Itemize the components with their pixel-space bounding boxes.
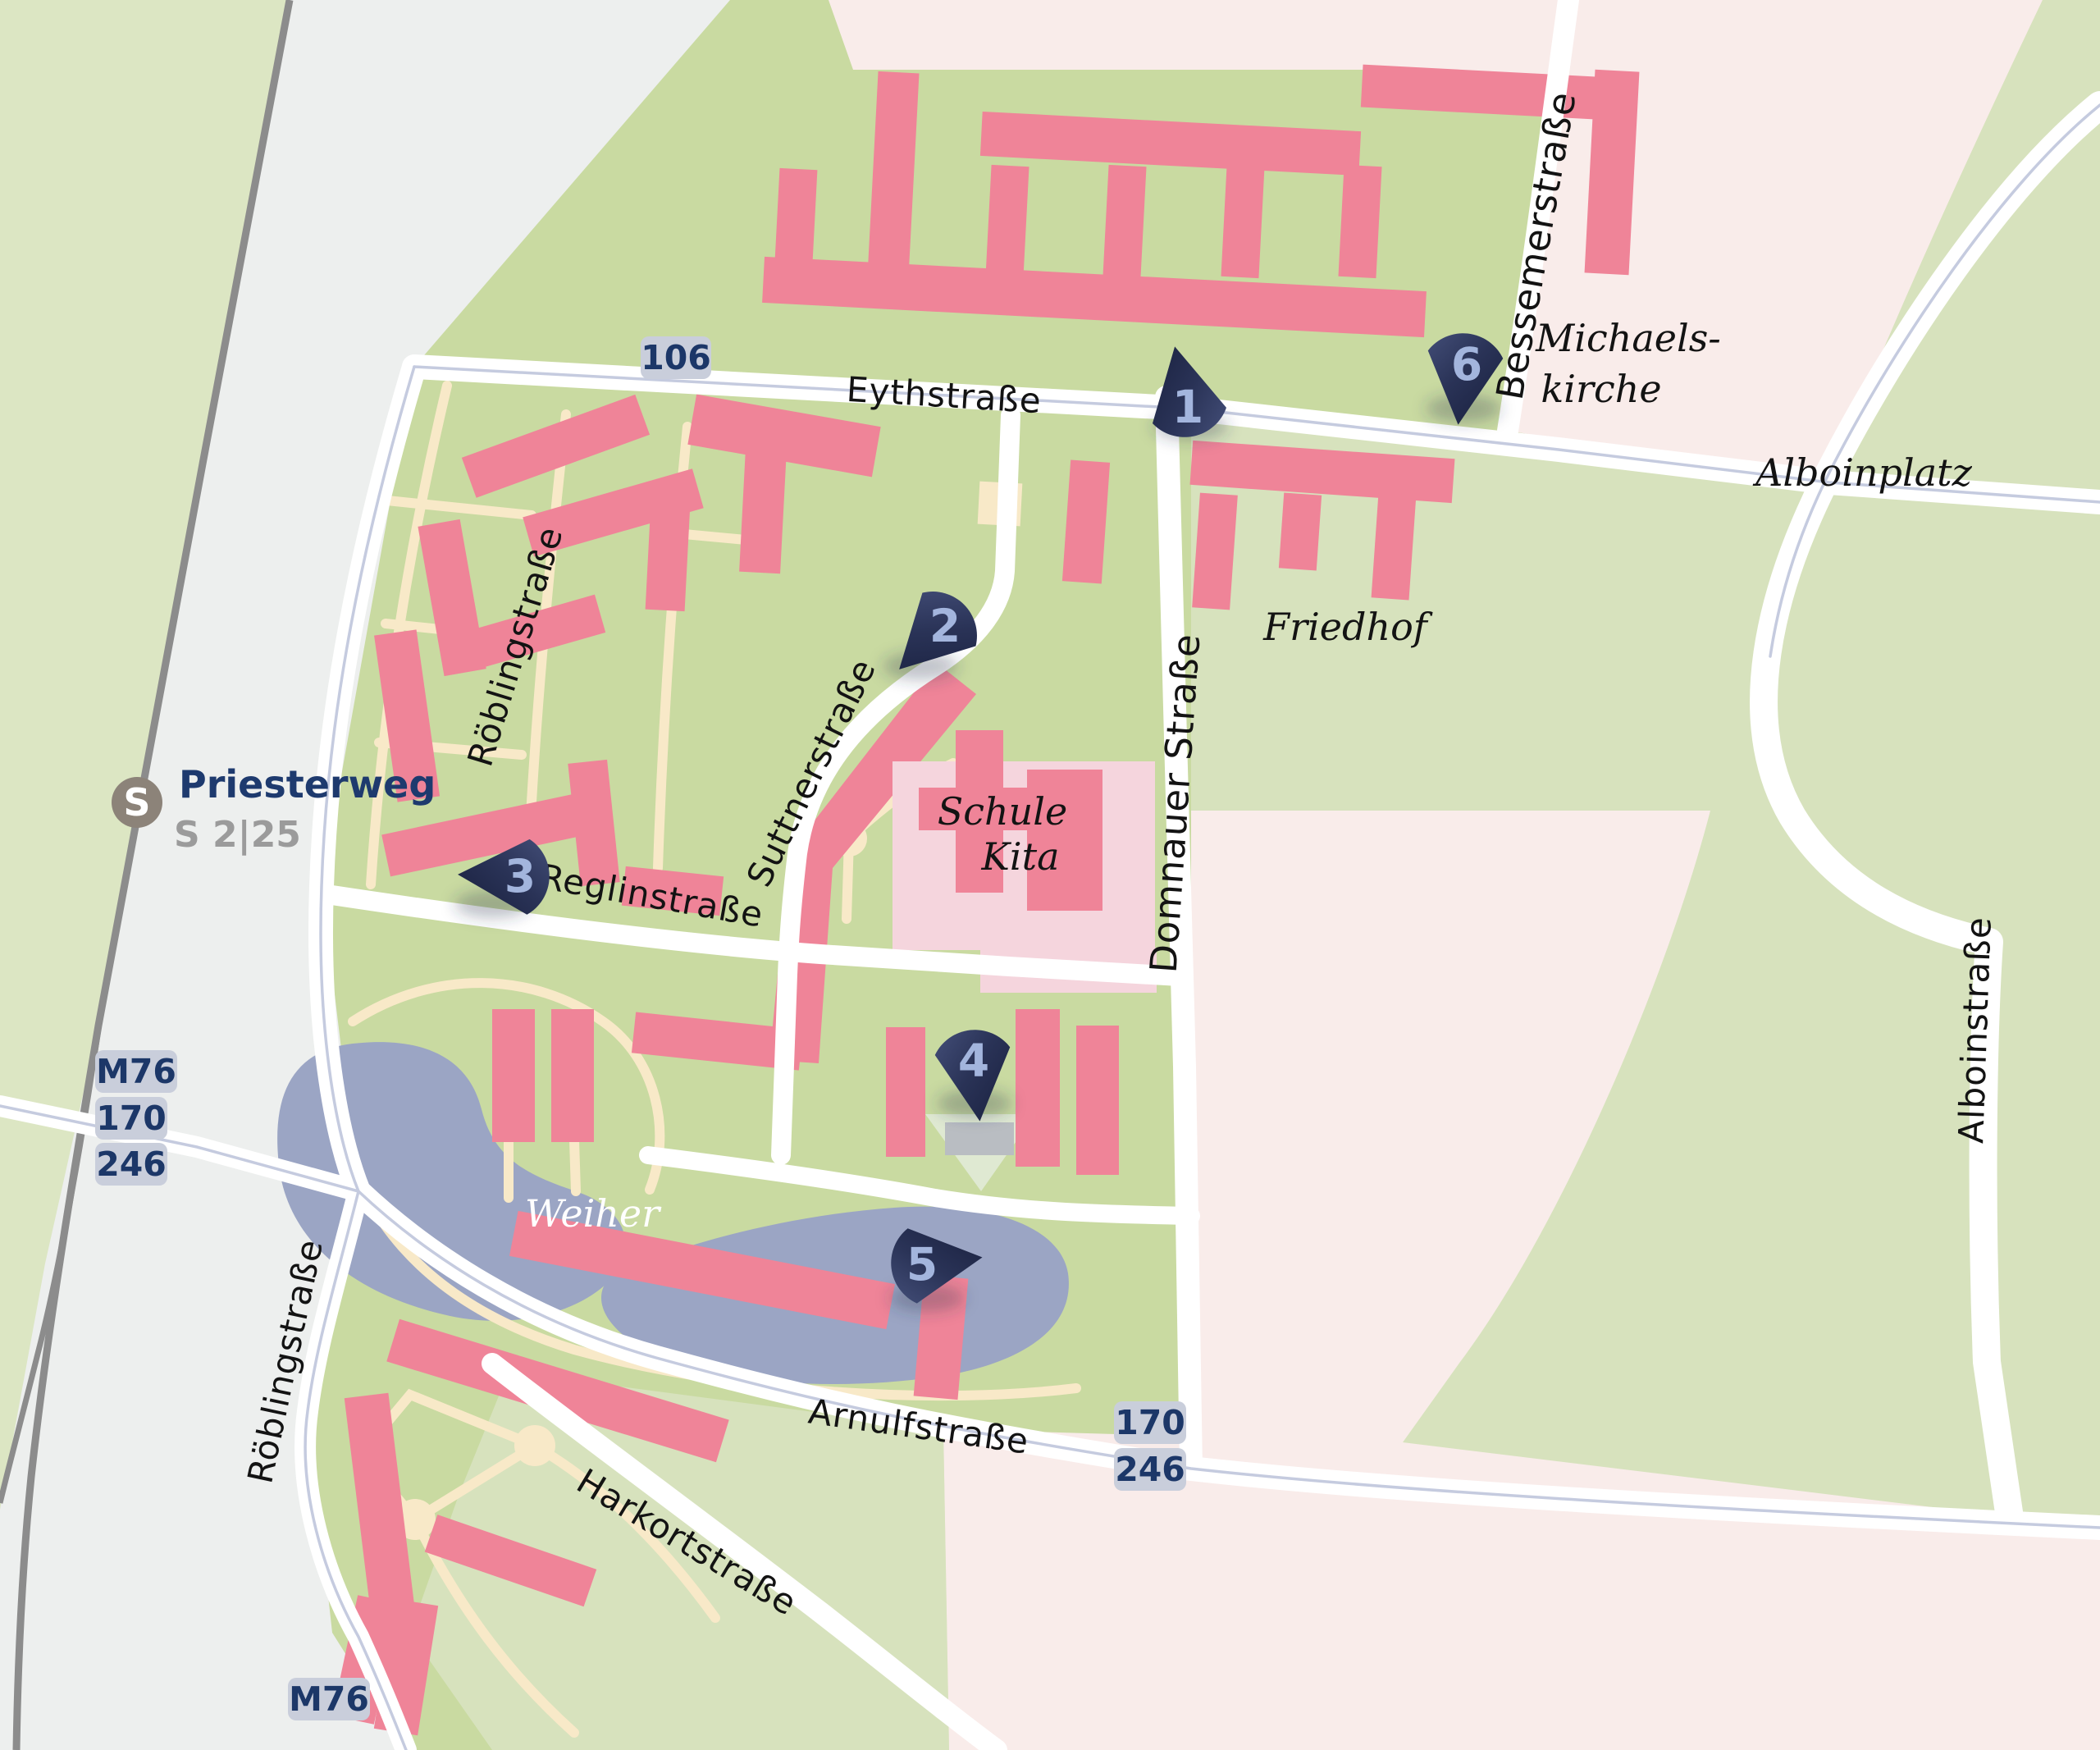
badge-m76-south: M76 [288,1678,370,1720]
badge-246-west: 246 [95,1143,167,1186]
label-alboinstrasse: Alboinstraße [1951,916,1999,1144]
label-michaelskirche-line2: kirche [1541,367,1661,411]
svg-text:106: 106 [641,338,711,377]
label-alboinplatz: Alboinplatz [1752,450,1972,495]
badge-170-west: 170 [95,1097,167,1140]
badge-246-arnulf: 246 [1114,1448,1186,1491]
svg-text:M76: M76 [289,1679,369,1719]
svg-text:170: 170 [96,1099,167,1138]
marker-6-number: 6 [1451,338,1482,391]
marker-5-number: 5 [906,1238,938,1291]
svg-text:170: 170 [1115,1403,1185,1442]
gazebo-roof [945,1122,1014,1155]
marker-4-number: 4 [958,1035,989,1087]
label-friedhof: Friedhof [1262,605,1433,649]
svg-text:246: 246 [1115,1450,1185,1489]
badge-170-arnulf: 170 [1114,1401,1186,1444]
city-map: Eythstraße Röblingstraße Röblingstraße S… [0,0,2100,1750]
svg-text:M76: M76 [96,1052,176,1091]
marker-3-number: 3 [504,850,536,902]
label-schule: Schule [938,789,1067,834]
station-lines: S 2|25 [174,814,301,856]
label-michaelskirche-line1: Michaels- [1535,316,1721,360]
badge-106: 106 [641,336,711,379]
marker-1-number: 1 [1172,381,1203,433]
station-name: Priesterweg [179,762,436,806]
marker-2-number: 2 [929,600,961,652]
label-kita: Kita [981,834,1060,879]
svg-text:246: 246 [96,1145,167,1184]
sbahn-logo-letter: S [123,780,150,825]
label-weiher: Weiher [525,1191,662,1236]
badge-m76-west: M76 [95,1050,177,1093]
